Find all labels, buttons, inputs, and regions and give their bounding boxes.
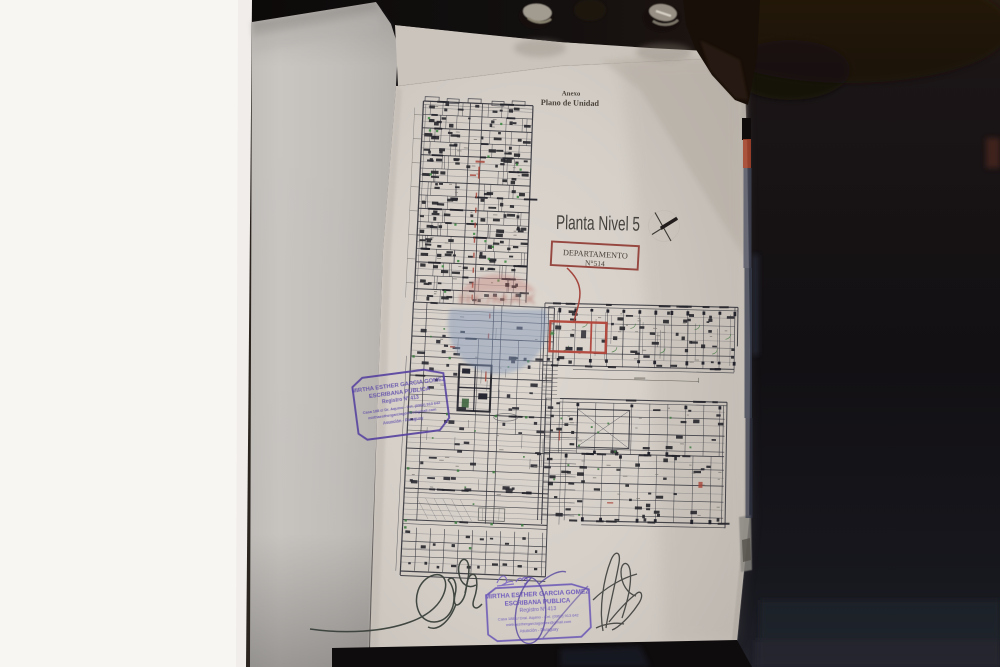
svg-text:RE/MAX: RE/MAX (458, 292, 536, 307)
svg-text:Planta Nivel 5: Planta Nivel 5 (556, 212, 640, 236)
svg-text:Plano de Unidad: Plano de Unidad (541, 98, 600, 108)
svg-text:Anexo: Anexo (562, 90, 581, 97)
svg-text:N°514: N°514 (585, 258, 606, 268)
